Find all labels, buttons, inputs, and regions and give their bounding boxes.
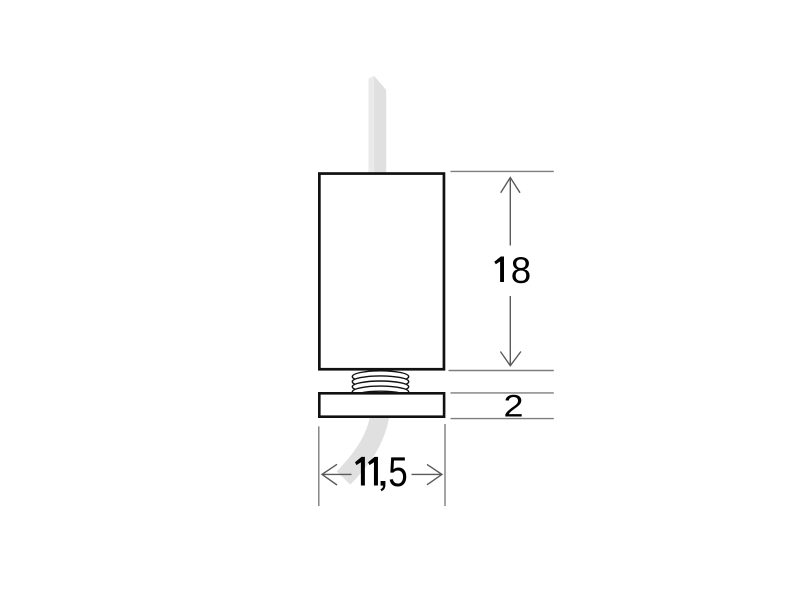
- svg-text:8: 8: [511, 250, 531, 291]
- svg-text:5: 5: [388, 448, 408, 495]
- svg-text:2: 2: [504, 387, 524, 423]
